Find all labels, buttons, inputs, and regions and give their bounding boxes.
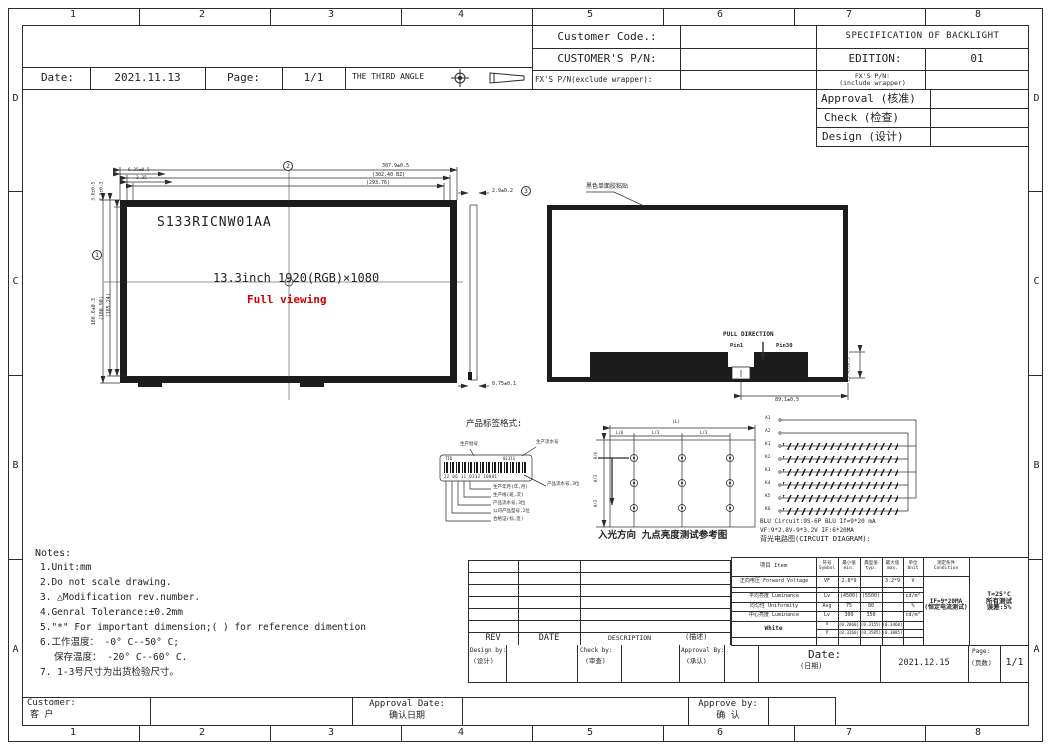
strip-page-label: Page:	[972, 649, 990, 655]
dim-side-thickness: 2.9±0.2	[492, 189, 513, 194]
dim-front-height-aa: (165.24)	[107, 293, 112, 317]
drawing-sheet: 1 2 3 4 5 6 7 8 1 2 3 4 5 6 7 8 D C B A …	[0, 0, 1051, 750]
spec-h-unit-en: Unit	[908, 567, 919, 572]
ninepoint-caption: 入光方向 九点亮度测试参考图	[598, 531, 727, 541]
pin30-label: Pin30	[776, 344, 793, 350]
spec-h-typ-en: typ.	[866, 567, 877, 572]
note-item: 5."*" For important dimension;( ) for re…	[40, 623, 366, 633]
dim-front-off1: 6.35±0.5	[128, 169, 150, 174]
label-format-title: 产品标签格式:	[466, 420, 522, 429]
led-row	[783, 495, 898, 502]
led-row	[783, 482, 898, 489]
pull-direction-label: PULL DIRECTION	[723, 332, 774, 338]
dim-front-width-bz: (302.40 BZ)	[372, 173, 405, 178]
led-row	[783, 443, 898, 450]
notes-title: Notes:	[35, 549, 71, 560]
label-leader-serial: 生产流水号	[536, 441, 559, 446]
approval-date-label: Approval Date:	[352, 699, 462, 710]
ninepoint-seg3: L/3	[700, 431, 707, 435]
spec-note3: 误差:5%	[987, 604, 1012, 611]
label-leader-s4: 公司产品型号,2位	[493, 510, 530, 515]
ninepoint-hseg3: H/3	[594, 500, 598, 507]
check-by-cn: (审查)	[585, 658, 606, 665]
spec-cell: (0.3260)	[838, 629, 860, 637]
strip-date-label: Date:	[808, 649, 841, 661]
strip-date-value: 2021.12.15	[880, 645, 968, 682]
customer-cn: 客 户	[30, 711, 53, 720]
spec-cell: Lv	[816, 592, 838, 602]
terminal-k2: K2	[765, 456, 770, 461]
approve-by-label: Approve by:	[688, 699, 768, 710]
spec-cell: 350	[860, 611, 882, 621]
spec-condition2: (恒定电流测试)	[924, 605, 967, 611]
spec-cell: (0.3585)	[860, 629, 882, 637]
dim-balloon-1: 1	[92, 250, 102, 260]
terminal-k5: K5	[765, 495, 770, 500]
spec-cell: y	[816, 629, 838, 637]
strip-date-cn: (日期)	[800, 663, 822, 670]
dim-front-vt2: 2.5±0.3	[100, 182, 105, 201]
note-item: 4.Genral Tolerance:±0.2mm	[40, 608, 183, 618]
panel-size-text: 13.3inch 1920(RGB)×1080	[213, 272, 379, 285]
dim-front-height-bz: (180.90)	[100, 296, 105, 320]
dim-balloon-2: 2	[283, 161, 293, 171]
spec-cell: (0.3885)	[882, 629, 903, 637]
spec-row-item: 中心亮度 Luminance	[749, 613, 799, 618]
approval-date-cn: 确认日期	[352, 711, 462, 722]
terminal-k1: K1	[765, 443, 770, 448]
label-code: 01311	[503, 457, 515, 461]
ninepoint-hseg2: H/3	[594, 475, 598, 482]
rev-header: REV	[468, 632, 518, 645]
spec-cell: VF	[816, 577, 838, 587]
spec-cell: %	[903, 602, 923, 611]
ninepoint-hseg1: H/6	[594, 452, 598, 459]
spec-cell: 300	[838, 611, 860, 621]
ninepoint-seg2: L/3	[652, 431, 659, 435]
dim-balloon-3: 3	[521, 186, 531, 196]
spec-cell: Lv	[816, 611, 838, 621]
circuit-line1: BLU Circuit:9S-6P BLU If=9*20 mA	[760, 519, 876, 525]
spec-row-item: 平均亮度 Luminance	[749, 594, 799, 599]
strip-page-value: 1/1	[1000, 645, 1029, 682]
spec-h-min-en: min.	[844, 567, 855, 572]
spec-cell: V	[903, 577, 923, 587]
spec-row-item: 正向电压 Forward Voltage	[740, 579, 808, 584]
label-leader-s3: 产品流水号,3位	[493, 502, 525, 507]
led-row	[783, 469, 898, 476]
spec-cell: Avg	[816, 602, 838, 611]
panel-model: S133RICNW01AA	[157, 216, 272, 230]
spec-cell: 2.8*9	[838, 577, 860, 587]
spec-h-max-en: max.	[887, 567, 898, 572]
terminal-k4: K4	[765, 482, 770, 487]
note-item: 6.工作温度： -0° C--50° C;	[40, 638, 179, 648]
design-by-label: Design by:	[470, 648, 506, 654]
spec-cell: x	[816, 621, 838, 629]
pin1-label: Pin1	[730, 344, 743, 350]
rev-description-cn: (描述)	[685, 634, 707, 641]
label-digits: 22 06 11 0312 10001	[444, 475, 497, 479]
spec-cell: (5500)	[860, 592, 882, 602]
dim-front-height: 186.6±0.3	[92, 298, 97, 325]
circuit-line2: VF:9*2.8V-9*3.2V IF:6*20MA	[760, 528, 854, 534]
full-viewing-text: Full viewing	[247, 294, 326, 306]
led-row	[783, 456, 898, 463]
rev-description-header: DESCRIPTION	[608, 635, 651, 642]
spec-cell: (0.3155)	[860, 621, 882, 629]
barcode	[444, 462, 528, 473]
dim-front-off2: 2.35	[136, 177, 147, 182]
design-by-cn: (设计)	[473, 658, 494, 665]
spec-cell: (4500)	[838, 592, 860, 602]
label-tid: TID	[445, 457, 452, 461]
spec-cell: cd/m²	[903, 611, 923, 621]
ninepoint-overall-l: (L)	[672, 421, 680, 426]
spec-cell: cd/m²	[903, 592, 923, 602]
terminal-k6: K6	[765, 508, 770, 513]
led-row	[783, 508, 898, 515]
label-leader-s1: 生产年月(年,月)	[493, 486, 528, 491]
customer-label: Customer:	[27, 699, 76, 708]
terminal-a1: A1	[765, 417, 770, 422]
note-item: 3. △Modification rev.number.	[40, 593, 200, 603]
label-leader-s5: 合格证(标,签)	[493, 518, 524, 523]
spec-h-cond-en: Condition	[934, 567, 958, 572]
circuit-line3: 背光电路图(CIRCUIT DIAGRAM):	[760, 536, 871, 543]
terminal-a2: A2	[765, 430, 770, 435]
label-leader-right: 产品流水号,3位	[547, 483, 579, 488]
note-item: 保存温度： -20° C--60° C.	[54, 653, 187, 663]
spec-cell: (0.2860)	[838, 621, 860, 629]
rev-date-header: DATE	[518, 632, 580, 645]
label-leader-s2: 生产线(班,次)	[493, 494, 524, 499]
spec-cell: 75	[838, 602, 860, 611]
dim-front-width-aa: (293.76)	[366, 181, 390, 186]
dim-side-bottom: 0.75±0.1	[492, 382, 516, 387]
dim-front-width: 307.9±0.5	[382, 164, 409, 169]
dim-fpc-width: 89.1±0.5	[775, 398, 799, 403]
dim-fpc-height: 15.45±0.3	[847, 357, 852, 381]
approval-by-cn: (承认)	[686, 658, 707, 665]
note-item: 1.Unit:mm	[40, 563, 91, 573]
spec-cell: 3.2*9	[882, 577, 903, 587]
approval-by-label: Approval By:	[681, 648, 724, 654]
spec-cell: 80	[860, 602, 882, 611]
spec-h-symbol-en: Symbol	[819, 567, 835, 572]
label-leader-top: 生产批号	[460, 443, 478, 448]
note-item: 2.Do not scale drawing.	[40, 578, 172, 588]
spec-h-item: 项目 Item	[760, 564, 788, 570]
ninepoint-seg1: L/6	[616, 431, 623, 435]
spec-white-label: White	[731, 621, 816, 637]
dim-front-vt1: 3.6±0.5	[92, 182, 97, 201]
spec-row-item: 均匀性 Uniformity	[750, 604, 798, 609]
terminal-k3: K3	[765, 469, 770, 474]
spec-cell: (0.3460)	[882, 621, 903, 629]
check-by-label: Check by:	[580, 648, 613, 654]
approve-by-cn: 确 认	[688, 711, 768, 722]
adhesive-note: 黑色单面胶粘贴	[586, 184, 628, 190]
strip-page-cn: (页数)	[971, 660, 992, 667]
note-item: 7. 1-3号尺寸为出货检验尺寸。	[40, 668, 179, 678]
